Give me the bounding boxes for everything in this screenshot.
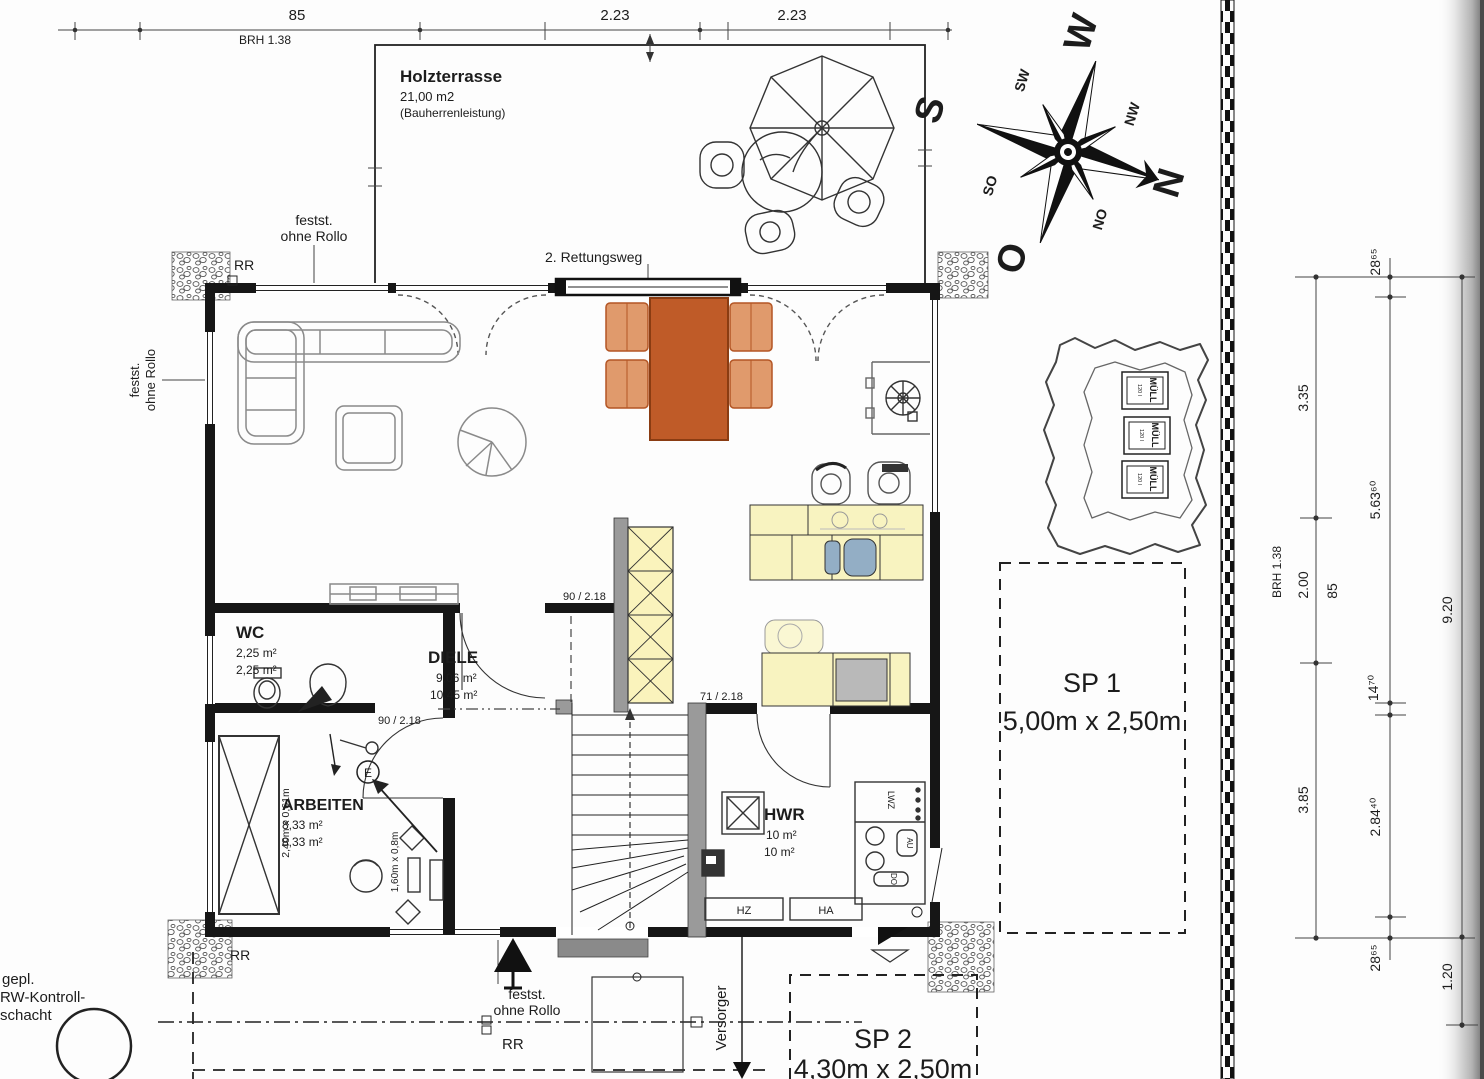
stove-icon (866, 362, 930, 434)
room-diele-area1: 9,06 m² (436, 671, 477, 685)
floorplan-canvas: 85 BRH 1.38 2.23 2.23 3.35 2.00 BRH 1.38… (0, 0, 1484, 1079)
dim-223-b: 2.23 (777, 7, 806, 24)
terrace-area: 21,00 m2 (400, 89, 454, 104)
dim-200: 2.00 (1295, 571, 1311, 598)
muell-label-2: MÜLL (1150, 423, 1160, 448)
dining-table-icon (606, 298, 772, 440)
muell-label-3: MÜLL (1148, 467, 1158, 492)
room-wc-area1: 2,25 m² (236, 646, 277, 660)
room-hwr-area2: 10 m² (764, 845, 795, 859)
dim-223-a: 2.23 (600, 7, 629, 24)
compass-n: N (1145, 164, 1193, 203)
compass-w: W (1056, 9, 1107, 56)
terrace: Holzterrasse 21,00 m2 (Bauherrenleistung… (368, 34, 932, 287)
hz-label: HZ (737, 905, 752, 917)
dim-brh-right: BRH 1.38 (1270, 546, 1284, 598)
festst-top-1: festst. (295, 212, 332, 228)
do-label: DO (889, 873, 898, 885)
rr-top-left: RR (234, 257, 254, 273)
muell-size-1: 120 l (1136, 384, 1142, 396)
bar-stools-icon (812, 462, 910, 504)
room-hwr-area1: 10 m² (766, 828, 797, 842)
dim-2865-top: 28⁶⁵ (1367, 248, 1383, 275)
scan-edge-shadow (1436, 0, 1484, 1079)
sofa-icon (238, 322, 460, 444)
muell-bins: MÜLL 120 l MÜLL 120 l MÜLL 120 l (1122, 372, 1170, 498)
room-hwr-name: HWR (764, 805, 805, 824)
dim-385: 3.85 (1295, 786, 1311, 813)
gravel-patches (168, 252, 994, 992)
festst-left-2: ohne Rollo (143, 349, 158, 411)
rw-control-shaft: gepl. RW-Kontroll- schacht (0, 971, 131, 1079)
room-diele-area2: 10,45 m² (430, 688, 477, 702)
kitchen-lower-counter (762, 620, 910, 706)
coffee-table-icon (336, 406, 402, 470)
wardrobe-size-label: 2,40m x 0,61m (280, 788, 292, 858)
compass-o: O (988, 238, 1037, 279)
dim-1470: 14⁷⁰ (1365, 674, 1381, 701)
dim-120: 1.20 (1439, 963, 1455, 990)
desk-size-label: 1,60m x 0,8m (390, 832, 401, 893)
floorplan-drawing: 85 BRH 1.38 2.23 2.23 3.35 2.00 BRH 1.38… (0, 0, 1484, 1079)
staircase (572, 703, 688, 935)
e-symbol: E (364, 766, 372, 780)
dim-920: 9.20 (1439, 596, 1455, 623)
dim-85: 85 (289, 7, 306, 24)
rw-label-2: RW-Kontroll- (0, 989, 85, 1006)
terrace-note: (Bauherrenleistung) (400, 106, 505, 120)
compass-no: NO (1089, 207, 1110, 232)
property-boundary-strip (1221, 0, 1234, 1079)
dim-2865-bottom: 28⁶⁵ (1367, 944, 1383, 971)
versorger-label: Versorger (713, 985, 730, 1050)
electrical-mark: E (330, 734, 437, 852)
tv-board-icon (330, 584, 458, 604)
compass-so: SO (979, 173, 1000, 197)
sp1-size: 5,00m x 2,50m (1003, 706, 1182, 736)
sink-main-bowl (844, 539, 876, 576)
sp1-name: SP 1 (1063, 668, 1121, 698)
rr-bottom-center: RR (502, 1036, 524, 1053)
dim-335: 3.35 (1295, 384, 1311, 411)
lwz-label: LWZ (886, 791, 896, 810)
ha-label: HA (818, 905, 834, 917)
muell-label-1: MÜLL (1148, 378, 1158, 403)
shaft-circle (57, 1009, 131, 1079)
festst-bottom-2: ohne Rollo (494, 1002, 561, 1018)
rescue-route-label: 2. Rettungsweg (545, 249, 642, 265)
sink-small-bowl (825, 541, 840, 574)
kitchen-island (750, 505, 923, 535)
door-size-label-1: 90 / 2.18 (563, 591, 606, 603)
dim-2844: 2.84⁴⁰ (1367, 797, 1383, 836)
door-size-label-3: 71 / 2.18 (700, 691, 743, 703)
room-labels: WC 2,25 m² 2,25 m² DIELE 9,06 m² 10,45 m… (236, 623, 805, 859)
sp2-name: SP 2 (854, 1024, 912, 1054)
compass-s: S (907, 92, 955, 129)
terrace-table-icon (742, 132, 822, 212)
au-label: AU (905, 837, 914, 848)
rr-bottom-left: RR (230, 947, 250, 963)
dim-brh-138: BRH 1.38 (239, 33, 291, 47)
armchair-icon (458, 408, 526, 476)
dim-85-right: 85 (1324, 583, 1340, 599)
wardrobe-icon (219, 736, 279, 914)
tall-cabinet (628, 527, 673, 703)
rw-label-1: gepl. (2, 971, 35, 988)
room-wc-area2: 2,25 m² (236, 663, 277, 677)
room-diele-name: DIELE (428, 648, 478, 667)
top-dimension-chain: 85 BRH 1.38 2.23 2.23 (58, 7, 952, 47)
door-size-label-2: 90 / 2.18 (378, 715, 421, 727)
terrace-title: Holzterrasse (400, 67, 502, 86)
kitchen-counter (750, 535, 923, 580)
sp2-size: 4,30m x 2,50m (794, 1054, 973, 1079)
room-wc-name: WC (236, 623, 264, 642)
rw-label-3: schacht (0, 1007, 53, 1024)
compass-nw: NW (1121, 100, 1143, 128)
dim-5636: 5.63⁶⁰ (1367, 480, 1383, 519)
festst-left-1: festst. (127, 363, 142, 398)
terrace-chairs-icon (700, 142, 889, 257)
compass-sw: SW (1011, 67, 1033, 94)
room-arbeiten-name: ARBEITEN (282, 797, 364, 814)
parking-sp1: SP 1 5,00m x 2,50m (1000, 563, 1185, 933)
muell-size-3: 120 l (1136, 473, 1142, 485)
festst-top-2: ohne Rollo (281, 228, 348, 244)
muell-size-2: 120 l (1138, 429, 1144, 441)
trash-area: MÜLL 120 l MÜLL 120 l MÜLL 120 l (1044, 338, 1208, 554)
interior-walls (215, 518, 940, 937)
oven-icon (836, 659, 887, 701)
